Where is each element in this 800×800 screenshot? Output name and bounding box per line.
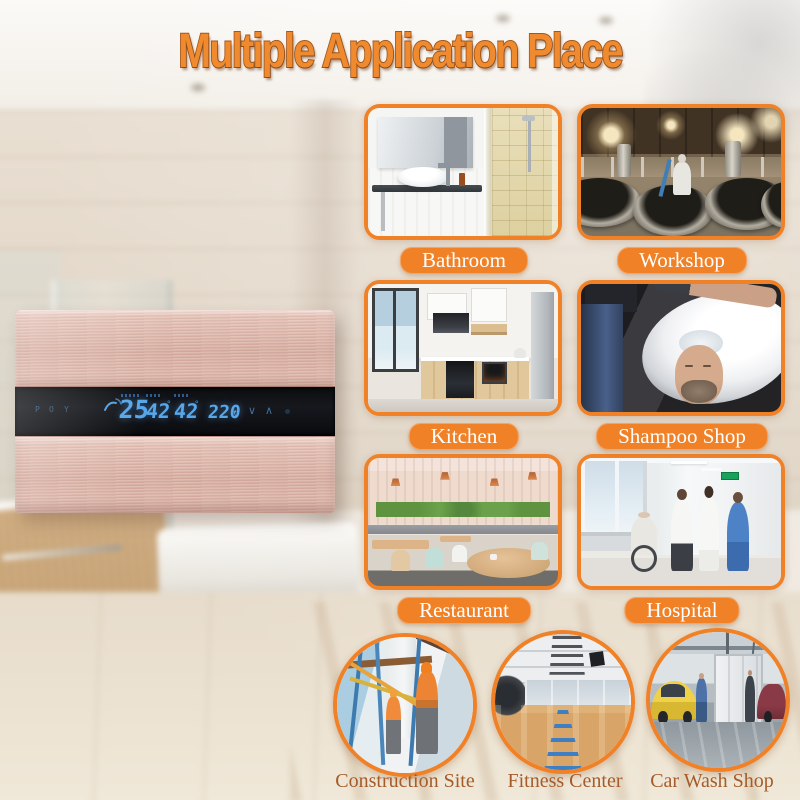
beard (681, 380, 717, 403)
chair (425, 548, 444, 568)
soap-bottle (459, 173, 465, 186)
exit-sign (721, 472, 739, 480)
hospital-photo (581, 458, 781, 586)
dishwasher (446, 361, 475, 398)
app-label-bathroom: Bathroom (400, 247, 528, 274)
chair (452, 545, 467, 562)
doctor-figure (671, 499, 693, 571)
app-tile-workshop (577, 104, 785, 240)
ceiling-light-strip (701, 468, 721, 471)
steel-tank (725, 141, 741, 177)
mirror-wall (525, 680, 631, 704)
promo-image: Multiple Application Place P O Y 25 ° 42… (0, 0, 800, 800)
bathroom-photo (368, 108, 558, 236)
shower-glass (484, 108, 492, 236)
round-label-car-wash-shop: Car Wash Shop (650, 770, 774, 793)
brewing-vat (581, 178, 641, 227)
chair (531, 542, 548, 560)
customer-figure (745, 676, 755, 722)
steel-tank (617, 144, 631, 177)
app-tile-restaurant (364, 454, 562, 590)
car-window (661, 684, 685, 698)
kitchen-photo (368, 284, 558, 412)
wall-plants (376, 502, 551, 517)
construction-site-photo (337, 637, 473, 773)
app-label-workshop: Workshop (617, 247, 747, 274)
wall-screen (589, 651, 604, 666)
round-label-construction-site: Construction Site (335, 770, 474, 793)
wheelchair-wheel (631, 545, 657, 572)
water-heater-device: P O Y 25 ° 42 ° 42 ° 220 v ∨ ∧ (15, 310, 335, 513)
workshop-photo (581, 108, 781, 236)
shower-rail (528, 116, 532, 172)
round-label-fitness-center: Fitness Center (508, 770, 623, 793)
closed-eye (685, 365, 693, 368)
wet-floor (650, 722, 786, 768)
window-mullion (393, 288, 397, 372)
wash-cabin (714, 654, 763, 725)
app-label-kitchen: Kitchen (409, 423, 519, 450)
hanging-rack (549, 634, 584, 675)
counter-leg (381, 192, 385, 230)
car-wash-shop-photo (650, 632, 786, 768)
app-label-hospital: Hospital (624, 597, 739, 624)
round-tile-construction-site (333, 633, 477, 777)
lower-cabinets (421, 361, 529, 399)
restaurant-photo (368, 458, 558, 586)
shampoo-shop-photo (581, 284, 781, 412)
bench-partition (368, 525, 558, 534)
closed-eye (703, 365, 711, 368)
upper-cabinet (471, 288, 507, 323)
shower-tile-wall (492, 108, 559, 236)
fridge (531, 292, 554, 401)
vessel-sink (398, 167, 447, 187)
app-tile-kitchen (364, 280, 562, 416)
factory-ceiling-lamps (581, 108, 781, 157)
kettle (514, 348, 525, 358)
washer-figure (696, 678, 707, 722)
shower-head (522, 116, 535, 121)
ceiling-light-strip (671, 461, 707, 465)
app-label-restaurant: Restaurant (397, 597, 531, 624)
fitness-center-photo (495, 634, 631, 770)
worker-figure (386, 697, 401, 754)
worker-figure (673, 162, 691, 195)
wood-shelf (471, 324, 507, 336)
page-title: Multiple Application Place (178, 24, 622, 79)
nurse-white-figure (699, 496, 719, 570)
app-label-shampoo-shop: Shampoo Shop (596, 423, 768, 450)
worker-figure (416, 672, 438, 754)
kitchen-floor (368, 399, 558, 412)
oven (482, 362, 507, 384)
range-hood (433, 313, 469, 332)
device-gloss (15, 310, 335, 513)
mirror-shade (444, 117, 467, 168)
barber-jeans (581, 304, 623, 412)
round-tile-car-wash-shop (646, 628, 790, 772)
round-tile-fitness-center (491, 630, 635, 774)
red-car (757, 684, 786, 719)
nurse-blue-figure (727, 502, 749, 571)
table-cup (490, 554, 498, 560)
faucet (446, 163, 450, 186)
app-tile-bathroom (364, 104, 562, 240)
app-tile-shampoo-shop (577, 280, 785, 416)
glass-door-edge (552, 108, 558, 236)
dining-table (440, 536, 470, 542)
chair (391, 550, 410, 570)
canopy-beam (650, 646, 786, 650)
dining-table (372, 540, 429, 549)
app-tile-hospital (577, 454, 785, 590)
